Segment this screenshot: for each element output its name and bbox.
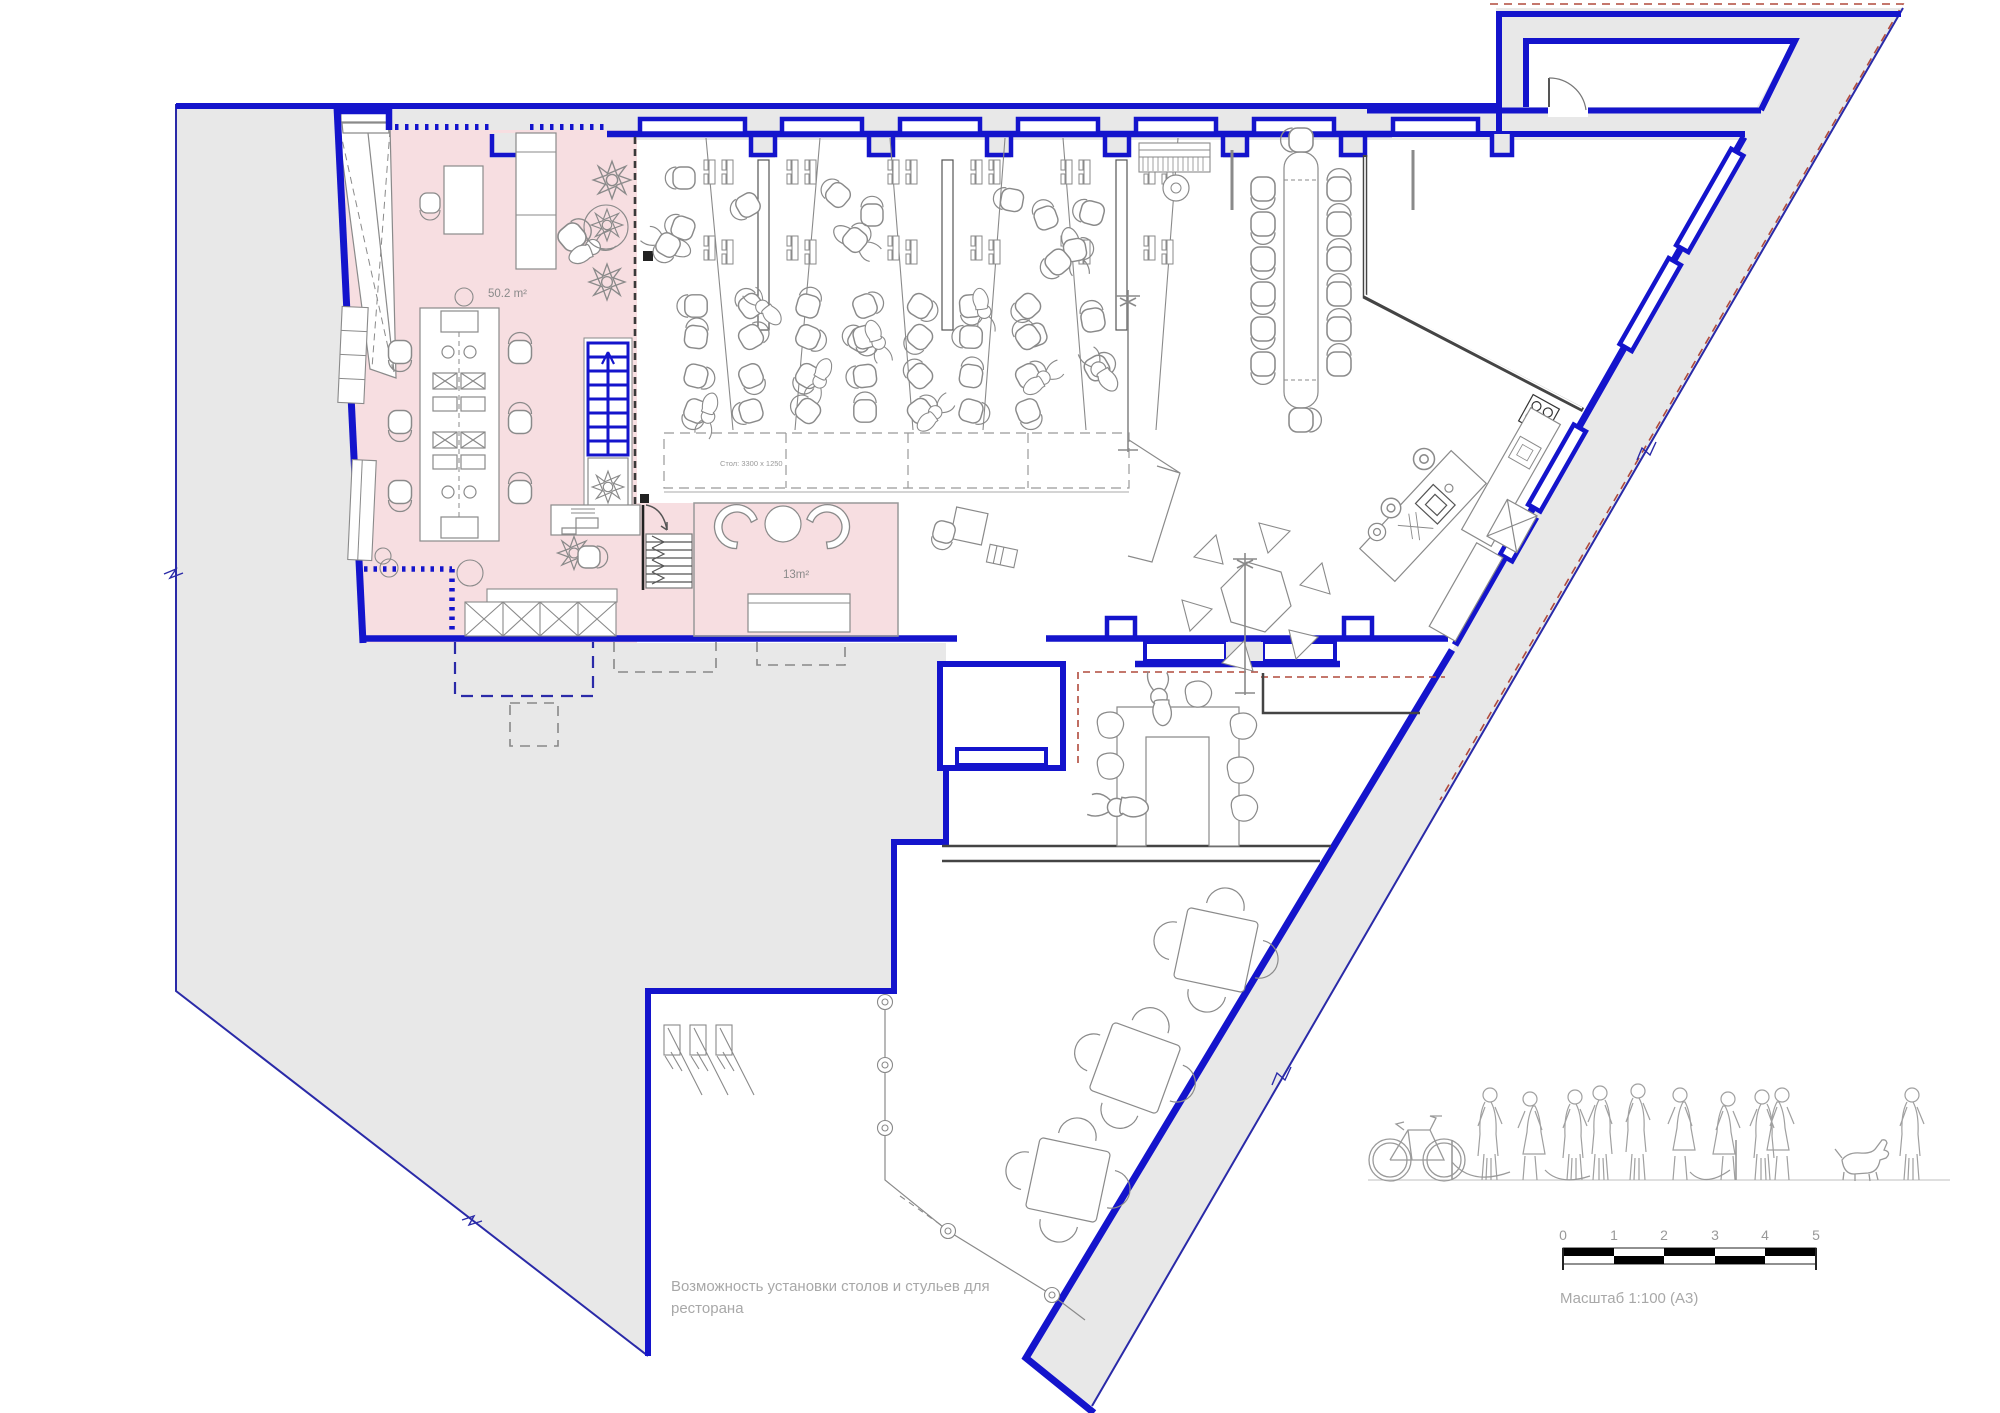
- svg-text:1: 1: [1610, 1227, 1618, 1243]
- svg-text:13m²: 13m²: [783, 569, 809, 581]
- svg-text:4: 4: [1761, 1227, 1769, 1243]
- svg-text:5: 5: [1812, 1227, 1820, 1243]
- svg-text:0: 0: [1559, 1227, 1567, 1243]
- svg-text:Масштаб 1:100 (А3): Масштаб 1:100 (А3): [1560, 1290, 1698, 1307]
- svg-text:Стол: 3300 x 1250: Стол: 3300 x 1250: [720, 459, 783, 468]
- svg-text:Возможность установки столов и: Возможность установки столов и стульев д…: [671, 1278, 990, 1295]
- svg-text:50.2 m²: 50.2 m²: [488, 288, 527, 300]
- svg-text:2: 2: [1660, 1227, 1668, 1243]
- svg-text:ресторана: ресторана: [671, 1300, 744, 1317]
- svg-text:3: 3: [1711, 1227, 1719, 1243]
